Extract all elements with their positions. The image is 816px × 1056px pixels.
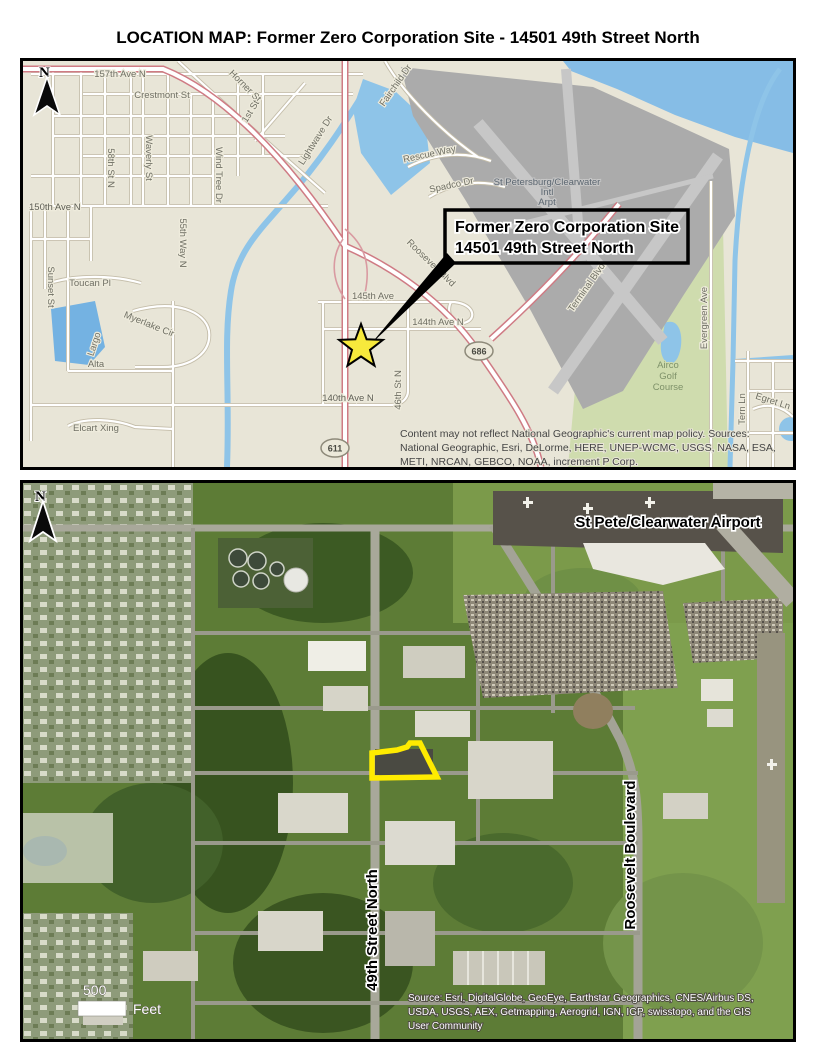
street-label-tern: Tern Ln (737, 393, 748, 425)
street-label-crestmont: Crestmont St (134, 90, 190, 101)
street-label-evergreen: Evergreen Ave (699, 287, 710, 349)
street-label-49th-street: 49th Street North (364, 869, 381, 991)
golf-label-line3: Course (653, 382, 684, 393)
golf-label-line1: Airco (657, 360, 679, 371)
street-label-150th-ave: 150th Ave N (29, 202, 81, 213)
treatment-plant (218, 538, 313, 608)
document-page: LOCATION MAP: Former Zero Corporation Si… (0, 0, 816, 1056)
page-title: LOCATION MAP: Former Zero Corporation Si… (0, 28, 816, 48)
attribution-line3: User Community (408, 1021, 482, 1032)
callout-line2: 14501 49th Street North (455, 240, 634, 257)
street-label-157th-ave: 157th Ave N (94, 69, 146, 80)
street-label-58th-st: 58th St N (105, 148, 116, 188)
attribution-line2: USDA, USGS, AEX, Getmapping, Aerogrid, I… (408, 1007, 751, 1018)
street-map-frame: 157th Ave N Crestmont St Horner St 1st S… (20, 58, 796, 470)
golf-label-line2: Golf (659, 371, 677, 382)
street-label-roosevelt-blvd: Roosevelt Boulevard (622, 780, 639, 929)
route-shield-686: 686 (465, 342, 493, 360)
street-label-140th-ave: 140th Ave N (322, 393, 374, 404)
street-label-46th-st: 46th St N (393, 370, 404, 410)
street-label-55th-way: 55th Way N (177, 218, 188, 267)
aerial-map: St Pete/Clearwater Airport 49th Street N… (23, 483, 793, 1039)
street-label-144th-ave: 144th Ave N (412, 317, 464, 328)
airport-name-label: St Pete/Clearwater Airport (575, 514, 760, 531)
svg-text:686: 686 (471, 347, 486, 357)
street-map: 157th Ave N Crestmont St Horner St 1st S… (23, 61, 793, 467)
attribution-line1: Source: Esri, DigitalGlobe, GeoEye, Eart… (408, 993, 754, 1004)
street-label-alta: Alta (88, 359, 105, 370)
aerial-map-frame: St Pete/Clearwater Airport 49th Street N… (20, 480, 796, 1042)
street-label-toucan: Toucan Pl (69, 278, 111, 289)
attribution-line3: METI, NRCAN, GEBCO, NOAA, increment P Co… (400, 456, 638, 467)
callout-line1: Former Zero Corporation Site (455, 219, 679, 236)
airport-label-line3: Arpt (538, 197, 556, 208)
street-label-sunset: Sunset St (45, 266, 56, 308)
attribution-line2: National Geographic, Esri, DeLorme, HERE… (400, 442, 776, 454)
street-label-waverly: Waverly St (143, 135, 154, 181)
street-label-145th-ave: 145th Ave (352, 291, 394, 302)
scale-bar-rect (78, 1001, 126, 1016)
scale-unit: Feet (133, 1001, 161, 1017)
route-shield-611: 611 (321, 439, 349, 457)
svg-text:611: 611 (328, 444, 343, 454)
street-label-wind-tree: Wind Tree Dr (213, 147, 224, 203)
scale-value: 500 (83, 982, 107, 998)
attribution-line1: Content may not reflect National Geograp… (400, 428, 750, 440)
street-label-elcart: Elcart Xing (73, 423, 119, 434)
